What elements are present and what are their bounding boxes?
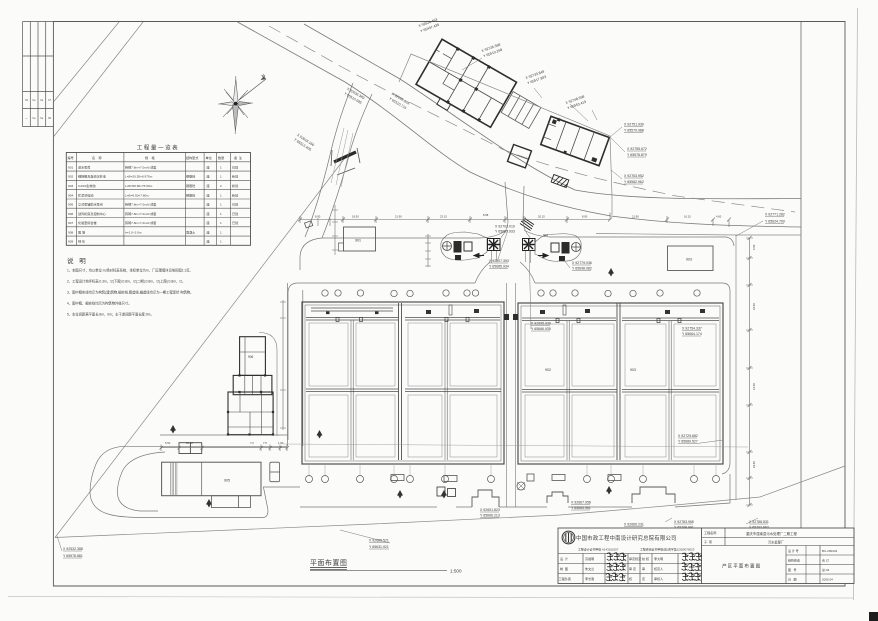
svg-text:已建: 已建 [232,202,238,207]
svg-text:座: 座 [207,211,210,216]
svg-text:X 92703.019: X 92703.019 [495,225,515,229]
svg-text:名 称: 名 称 [92,155,102,160]
svg-text:数量: 数量 [218,155,224,160]
svg-text:901: 901 [68,165,73,169]
svg-text:混凝土: 混凝土 [186,229,195,234]
svg-text:X 92771.282: X 92771.282 [765,213,785,217]
svg-text:Y 65631.921: Y 65631.921 [369,545,389,549]
svg-text:绿 化: 绿 化 [78,239,85,244]
svg-text:X 92755.672: X 92755.672 [627,147,647,151]
svg-text:4.50: 4.50 [752,244,756,250]
svg-text:16.60: 16.60 [186,441,193,445]
svg-text:1: 1 [220,240,222,244]
svg-text:1: 1 [220,221,222,225]
svg-text:李大明: 李大明 [654,556,663,561]
svg-text:Y 65665.961: Y 65665.961 [571,506,591,510]
svg-text:902: 902 [545,368,551,372]
svg-text:905: 905 [68,203,73,207]
svg-text:20.15: 20.15 [538,215,545,219]
svg-text:砖砌7.8m×7.0m/d 成套: 砖砌7.8m×7.0m/d 成套 [125,220,156,225]
svg-text:核定人: 核定人 [654,566,663,571]
svg-text:16.15: 16.15 [684,215,691,219]
svg-text:编号: 编号 [68,155,74,160]
svg-text:1: 1 [220,175,222,179]
svg-text:Y 65698.082: Y 65698.082 [572,267,592,271]
svg-text:3、图中粗实线均示为构筑(建)筑物,细实线,粗虚线,细虚线均: 3、图中粗实线均示为构筑(建)筑物,细实线,粗虚线,细虚线均示为一期工程现状 构… [67,290,193,295]
svg-text:8.98: 8.98 [483,213,489,217]
svg-text:中国市政工程中南设计研究总院有限公司: 中国市政工程中南设计研究总院有限公司 [576,534,677,542]
svg-text:14.50: 14.50 [752,383,756,390]
svg-text:Y 65685.933: Y 65685.933 [495,230,515,234]
svg-text:座: 座 [207,192,210,197]
svg-text:工程量一览表: 工程量一览表 [137,144,180,152]
svg-text:908: 908 [68,230,73,234]
svg-text:新建: 新建 [232,183,238,188]
svg-text:座: 座 [207,183,210,188]
svg-text:定: 定 [642,576,645,581]
svg-text:906: 906 [68,212,73,216]
svg-text:L×B=58.60×75.60m: L×B=58.60×75.60m [125,184,153,188]
svg-text:污水处理厂: 污水处理厂 [768,540,784,545]
svg-text:日 期: 日 期 [788,577,797,582]
svg-text:贮泥浓缩池: 贮泥浓缩池 [78,192,93,197]
svg-text:审 定: 审 定 [629,566,636,571]
svg-text:座: 座 [207,229,210,234]
svg-text:903: 903 [686,258,692,262]
svg-text:—: — [25,117,28,120]
svg-text:重庆市潼南县污水处理厂二期工程: 重庆市潼南县污水处理厂二期工程 [746,531,797,536]
svg-text:细格栅及旋流沉砂池: 细格栅及旋流沉砂池 [78,174,106,179]
svg-text:1: 1 [220,230,222,234]
svg-text:4、图中粗、细实线均示为构筑物外缘尺寸。: 4、图中粗、细实线均示为构筑物外缘尺寸。 [67,301,131,306]
svg-text:1: 1 [220,212,222,216]
svg-text:钢筋砼: 钢筋砼 [186,192,195,197]
svg-text:909: 909 [68,240,73,244]
svg-text:工程咨询证书甲级(建)咨字第12020070023: 工程咨询证书甲级(建)咨字第12020070023 [640,547,695,552]
svg-text:图 号: 图 号 [788,567,797,572]
svg-text:钢筋砼: 钢筋砼 [186,183,195,188]
svg-text:X 92763.952: X 92763.952 [624,174,644,178]
svg-text:904: 904 [68,193,73,197]
svg-text:1: 1 [220,203,222,207]
svg-text:结构型式: 结构型式 [186,155,198,160]
svg-text:子 项: 子 项 [704,539,712,544]
svg-text:BC-200343: BC-200343 [822,549,838,553]
svg-text:结构修改: 结构修改 [788,558,800,563]
svg-text:Y 65666.213: Y 65666.213 [480,514,500,518]
svg-text:新建: 新建 [232,174,238,179]
svg-text:907: 907 [68,221,73,225]
svg-text:X 92788.831: X 92788.831 [749,520,769,524]
svg-text:902: 902 [68,175,73,179]
svg-text:校 核: 校 核 [642,556,649,561]
svg-text:Y 65685.934: Y 65685.934 [489,265,509,269]
svg-text:905: 905 [224,479,230,483]
svg-text:X 92751.939: X 92751.939 [624,123,644,127]
svg-text:核: 核 [629,576,632,581]
svg-text:审核人: 审核人 [654,576,663,581]
svg-text:工程名称: 工程名称 [704,530,716,535]
svg-text:X 92695.939: X 92695.939 [531,322,551,326]
svg-text:CASS生物池: CASS生物池 [78,183,96,188]
svg-text:规 格: 规 格 [145,155,156,160]
svg-text:Y 65579.988: Y 65579.988 [624,129,644,133]
svg-text:21.90: 21.90 [395,215,402,219]
svg-text:座: 座 [207,164,210,169]
svg-text:合 订: 合 订 [822,558,829,563]
svg-text:高祖明: 高祖明 [585,556,594,561]
svg-text:8.90: 8.90 [582,215,588,219]
svg-text:5.50: 5.50 [165,441,171,445]
svg-text:X 92779.036: X 92779.036 [572,261,592,265]
svg-text:座: 座 [207,174,210,179]
svg-text:901: 901 [355,239,361,243]
svg-text:1、本图尺寸，均以单位:m;绝对标高系统，坐标单位为m，厂区: 1、本图尺寸，均以单位:m;绝对标高系统，坐标单位为m，厂区围墙详见地形图1:1… [67,268,193,273]
svg-text:X 92754.337: X 92754.337 [682,327,702,331]
svg-text:L×B=20.55×6.975m: L×B=20.55×6.975m [125,175,153,179]
svg-text:平面布置图: 平面布置图 [310,558,347,567]
svg-text:X 92729.682: X 92729.682 [678,434,698,438]
svg-text:Y 65689.527: Y 65689.527 [678,440,698,444]
svg-text:立式泵辅助水泵间: 立式泵辅助水泵间 [78,202,103,207]
svg-text:钢筋砼: 钢筋砼 [186,174,195,179]
svg-text:19.50: 19.50 [752,461,756,468]
svg-text:化验室综合楼: 化验室综合楼 [78,220,97,225]
svg-text:Y 65666.935: Y 65666.935 [531,327,551,331]
svg-text:朱文兰: 朱文兰 [585,566,594,571]
svg-text:工程负责: 工程负责 [559,576,571,581]
svg-text:903: 903 [630,368,636,372]
svg-text:制 图: 制 图 [560,566,568,571]
svg-text:1: 1 [220,193,222,197]
svg-text:903: 903 [68,184,73,188]
svg-text:审: 审 [642,566,645,571]
svg-text:X 92783.965: X 92783.965 [674,520,694,524]
svg-text:Y 65664.174: Y 65664.174 [682,332,702,336]
svg-text:X 92691.823: X 92691.823 [480,508,500,512]
svg-text:902: 902 [543,233,548,237]
svg-text:鼓风机房及控制中心: 鼓风机房及控制中心 [78,211,106,216]
svg-text:产区平面布置图: 产区平面布置图 [722,563,761,570]
svg-text:8.90: 8.90 [315,215,321,219]
svg-text:21.90: 21.90 [632,215,639,219]
svg-text:已建: 已建 [232,211,238,216]
svg-text:2005.04: 2005.04 [822,578,833,582]
svg-text:砖砌7.8m×7.0m/d 成套: 砖砌7.8m×7.0m/d 成套 [125,211,156,216]
svg-text:2、工程设计地坪标高:0.3m，/2(下限):0.8m，/2: 2、工程设计地坪标高:0.3m，/2(下限):0.8m，/2(二期):0.8m，… [67,279,185,284]
svg-text:23.15: 23.15 [440,215,447,219]
svg-text:1: 1 [220,165,222,169]
svg-text:砖砌7.8m×7.0m/d 成套: 砖砌7.8m×7.0m/d 成套 [125,202,156,207]
svg-text:19.50: 19.50 [752,303,756,310]
svg-text:X 92532.388: X 92532.388 [63,547,83,551]
svg-text:座: 座 [207,239,210,244]
svg-text:18.50: 18.50 [352,215,359,219]
svg-text:总-04: 总-04 [822,567,830,572]
svg-text:座: 座 [207,202,210,207]
svg-text:5、车位间距离平面长:8m，0m；主干道间距平面长度:0m。: 5、车位间距离平面长:8m，0m；主干道间距平面长度:0m。 [67,312,154,317]
svg-text:备 注: 备 注 [234,155,242,160]
svg-text:Y 65578.881: Y 65578.881 [63,554,83,558]
svg-text:Y 65582.962: Y 65582.962 [624,180,644,184]
svg-text:Y 65624.709: Y 65624.709 [765,220,785,224]
svg-text:1:500: 1:500 [450,569,462,574]
svg-text:设 计 号: 设 计 号 [788,548,799,553]
svg-text:已建: 已建 [232,164,238,169]
svg-text:审定核定: 审定核定 [629,556,641,561]
svg-text:砖砌7.8m×7.0m/d 成套: 砖砌7.8m×7.0m/d 成套 [125,164,156,169]
svg-text:座: 座 [207,220,210,225]
svg-text:说 明: 说 明 [67,256,88,265]
svg-text:已建: 已建 [232,220,238,225]
svg-text:906: 906 [248,355,254,359]
svg-text:围 墙: 围 墙 [78,229,85,234]
svg-text:1.90: 1.90 [278,441,284,445]
svg-text:Y 65578.879: Y 65578.879 [627,153,647,157]
svg-text:工程设计证书甲级 A143101057: 工程设计证书甲级 A143101057 [578,547,619,552]
svg-text:7.0: 7.0 [250,441,254,445]
svg-text:X 92666.231: X 92666.231 [624,523,644,527]
svg-text:李长春: 李长春 [585,576,594,581]
svg-text:7.5: 7.5 [263,441,267,445]
svg-text:X 92707.393: X 92707.393 [489,259,509,263]
svg-text:进水泵房: 进水泵房 [78,164,90,169]
svg-text:4.60: 4.60 [716,215,722,219]
svg-text:单位: 单位 [206,155,212,160]
svg-text:h=1.0~2.0m: h=1.0~2.0m [125,230,142,234]
svg-text:L×B=9.50×7.80m: L×B=9.50×7.80m [125,193,149,197]
svg-text:2: 2 [220,184,222,188]
svg-text:X 92667.958: X 92667.958 [571,501,591,505]
svg-text:设 计: 设 计 [560,556,568,561]
svg-text:新建: 新建 [232,192,238,197]
